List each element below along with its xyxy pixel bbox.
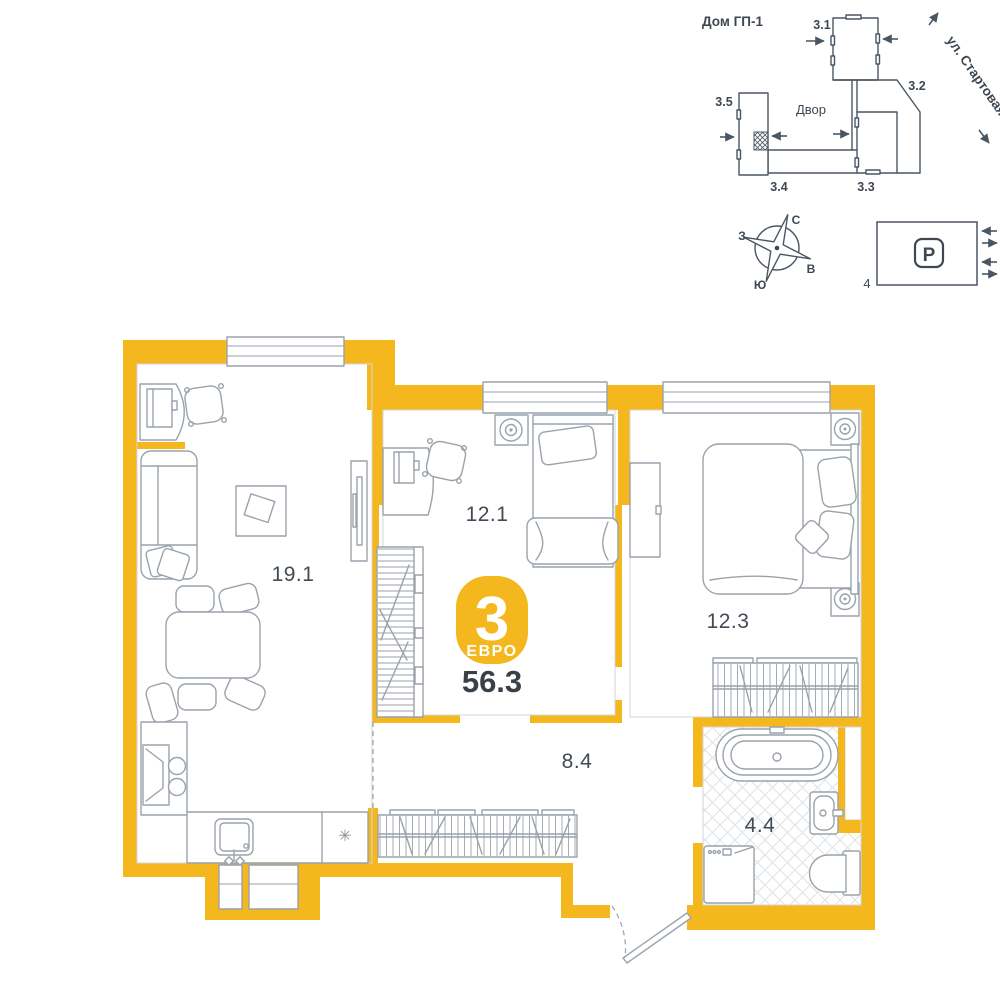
bay-window-2 (249, 865, 298, 909)
hall-wardrobe (378, 810, 577, 857)
duvet (703, 444, 803, 594)
street-arrow-down (979, 130, 989, 143)
blanket (527, 518, 618, 564)
duct-shaft (845, 727, 861, 820)
site-subject-building-marker (754, 132, 768, 150)
site-street: ул. Стартовая (929, 13, 1000, 143)
desk-chair (184, 384, 227, 427)
wardrobe-1 (377, 547, 423, 717)
tv-stand (351, 461, 367, 561)
bathroom-area-label: 4.4 (745, 814, 776, 837)
bedroom-2-area-label: 12.3 (707, 610, 750, 633)
apartment-plan: ✳ 19.1 (123, 337, 875, 963)
pillow (817, 456, 857, 508)
coffee-table (236, 486, 286, 536)
site-plan-house-label: Дом ГП-1 (702, 14, 763, 29)
dining-chair (176, 586, 214, 612)
dining-chair (222, 673, 267, 712)
cabinet (630, 463, 661, 557)
pillow (538, 425, 597, 465)
hallway-area-label: 8.4 (562, 750, 593, 773)
site-street-label: ул. Стартовая (944, 33, 1000, 118)
window-living (227, 337, 344, 366)
site-building-3-2-label: 3.2 (908, 79, 925, 93)
wardrobe-2 (713, 658, 858, 717)
compass-north-label: С (792, 213, 801, 227)
burner-icon (169, 779, 186, 796)
site-building-3-1-label: 3.1 (813, 18, 830, 32)
desk-2 (383, 448, 433, 515)
compass-rose: С З В Ю (738, 213, 815, 292)
entrance-door (612, 906, 691, 963)
window-bedroom-2 (663, 382, 830, 413)
site-building-3-1: 3.1 (813, 15, 879, 80)
site-courtyard-label: Двор (796, 102, 826, 117)
compass-south-label: Ю (754, 278, 766, 292)
kitchen-counter: ✳ (141, 722, 368, 865)
bathroom-sink-icon (810, 792, 843, 834)
stove-icon (143, 745, 169, 805)
apartment-type-badge: 3 ЕВРО (456, 576, 528, 664)
site-building-3-3: 3.3 (855, 112, 897, 194)
street-arrow-up (929, 13, 938, 25)
desk (140, 384, 184, 440)
single-bed (527, 415, 618, 567)
fridge-icon: ✳ (338, 828, 351, 845)
site-building-3-5-label: 3.5 (715, 95, 732, 109)
bay-window-1 (219, 865, 242, 909)
floor-plan-canvas: Дом ГП-1 3.1 3.2 3.3 (0, 0, 1000, 1000)
site-plan: Дом ГП-1 3.1 3.2 3.3 (702, 13, 1000, 194)
dining-table (144, 582, 267, 725)
washing-machine-icon (704, 846, 754, 903)
bathtub (716, 727, 838, 781)
parking-area: P 4 (863, 222, 997, 291)
parking-symbol: P (923, 245, 936, 266)
total-area-label: 56.3 (462, 664, 522, 699)
sofa (141, 451, 197, 582)
burner-icon (169, 758, 186, 775)
room-hallway: 8.4 (378, 750, 691, 963)
bedroom-1-area-label: 12.1 (466, 503, 509, 526)
nightstand-lamp-2 (831, 413, 859, 445)
dining-chair (144, 681, 179, 725)
parking-lot-number: 4 (863, 276, 870, 291)
nightstand-lamp (495, 415, 528, 445)
compass-east-label: В (807, 262, 816, 276)
room-living: ✳ 19.1 (140, 384, 373, 866)
badge-layout-type: ЕВРО (466, 643, 517, 660)
living-area-label: 19.1 (272, 563, 315, 586)
room-bedroom-2: 12.3 (630, 413, 859, 717)
window-bedroom-1 (483, 382, 607, 413)
compass-west-label: З (738, 229, 746, 243)
site-building-3-4-label: 3.4 (770, 180, 787, 194)
site-building-3-4: 3.4 (768, 150, 857, 194)
dining-chair (217, 582, 260, 616)
double-bed (703, 444, 858, 594)
site-building-3-3-label: 3.3 (857, 180, 874, 194)
dining-chair (178, 684, 216, 710)
